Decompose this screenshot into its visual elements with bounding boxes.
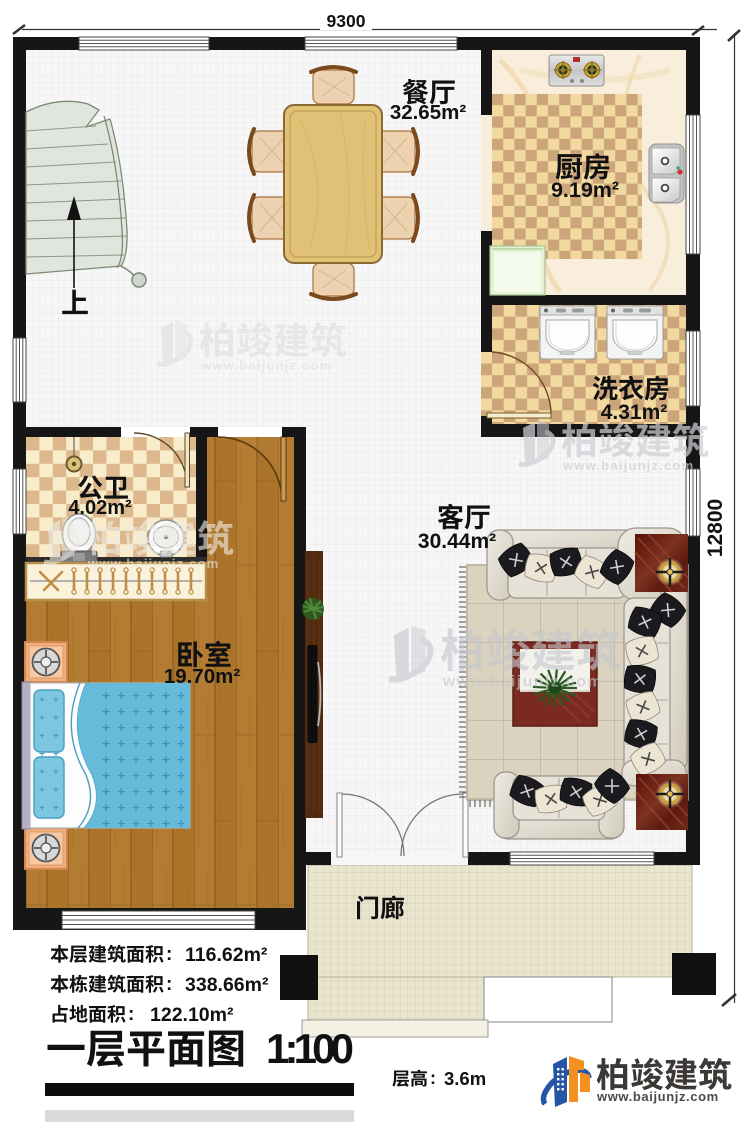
svg-text:4.02m²: 4.02m² <box>68 497 132 519</box>
svg-text:1:100: 1:100 <box>266 1025 354 1072</box>
svg-text::: : <box>430 1068 436 1088</box>
svg-text::: : <box>166 944 172 965</box>
svg-text:30.44m²: 30.44m² <box>418 530 496 553</box>
svg-text:32.65m²: 32.65m² <box>390 101 467 124</box>
svg-text:9.19m²: 9.19m² <box>551 178 619 202</box>
svg-text::: : <box>128 1004 134 1025</box>
svg-text:www.baijunjz.com: www.baijunjz.com <box>596 1089 719 1104</box>
svg-text:116.62m²: 116.62m² <box>185 944 268 966</box>
svg-text:122.10m²: 122.10m² <box>150 1004 234 1026</box>
svg-text:3.6m: 3.6m <box>444 1068 486 1089</box>
svg-text:19.70m²: 19.70m² <box>164 665 241 688</box>
svg-text:4.31m²: 4.31m² <box>601 401 668 424</box>
svg-text:9300: 9300 <box>327 11 366 31</box>
svg-text::: : <box>166 974 172 995</box>
svg-text:12800: 12800 <box>704 499 727 557</box>
svg-text:338.66m²: 338.66m² <box>185 974 269 996</box>
